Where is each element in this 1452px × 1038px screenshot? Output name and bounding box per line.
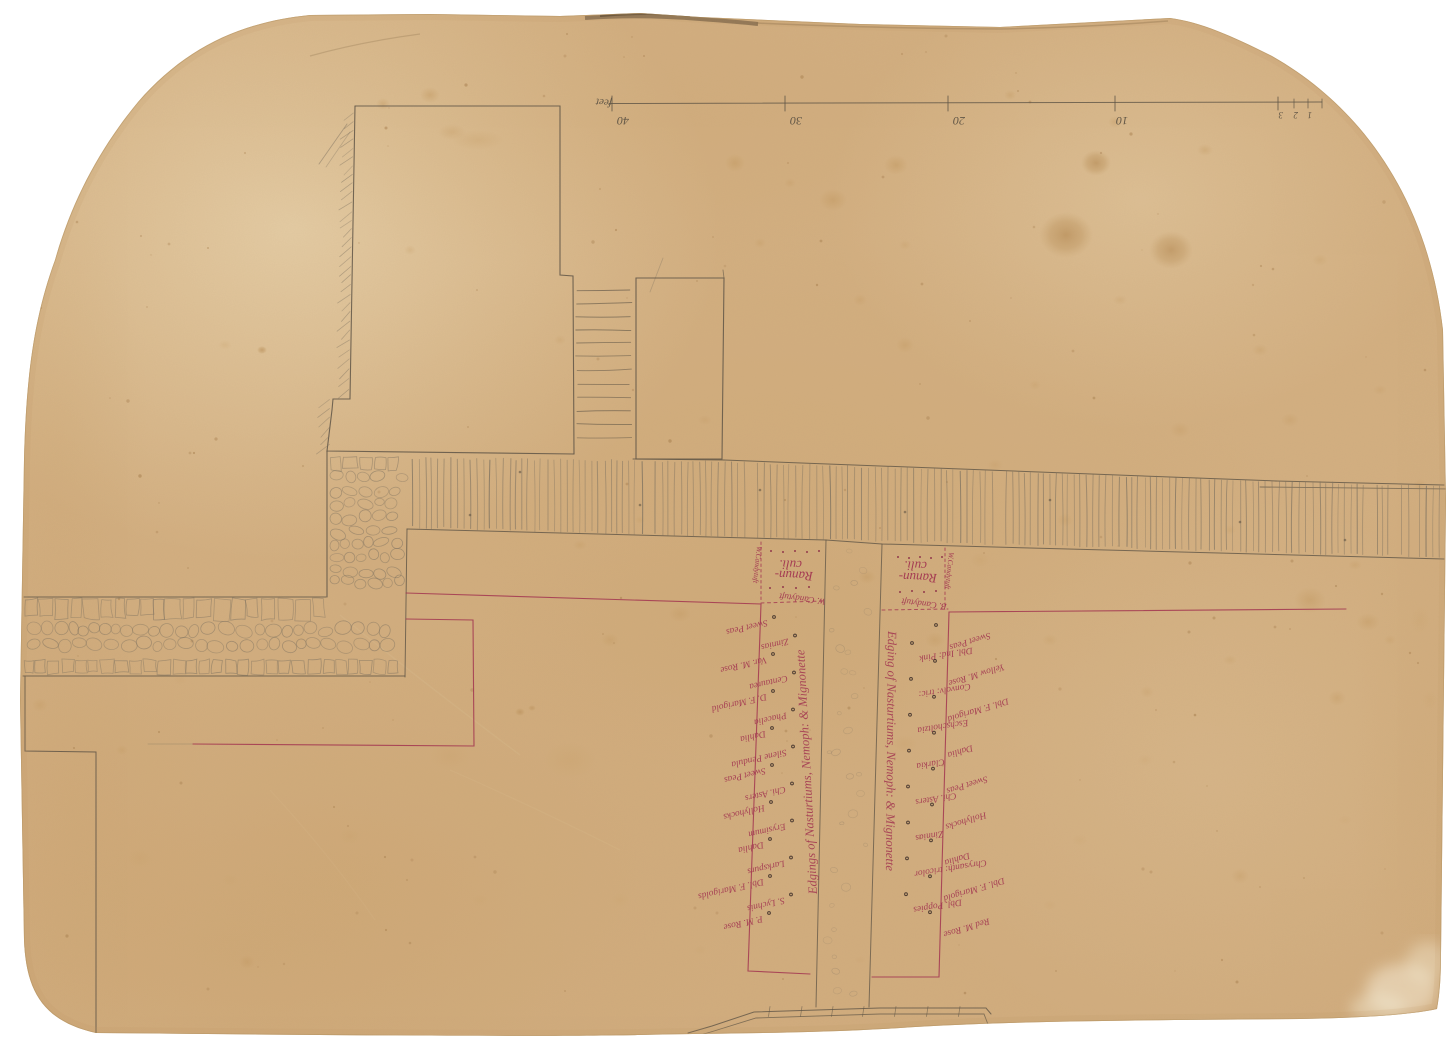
svg-text:30: 30 [790, 114, 803, 128]
svg-text:40: 40 [617, 114, 629, 128]
svg-text:Edging of Nasturtiums, Nemoph:: Edging of Nasturtiums, Nemoph: & Mignone… [883, 630, 899, 871]
svg-text:2: 2 [1293, 110, 1298, 120]
svg-text:10: 10 [1116, 114, 1128, 128]
svg-text:1: 1 [1308, 110, 1313, 120]
svg-text:20: 20 [953, 114, 965, 128]
svg-text:culi.: culi. [779, 557, 802, 573]
svg-text:culi.: culi. [904, 558, 927, 574]
svg-text:3: 3 [1278, 110, 1284, 120]
svg-text:feet: feet [594, 96, 612, 109]
